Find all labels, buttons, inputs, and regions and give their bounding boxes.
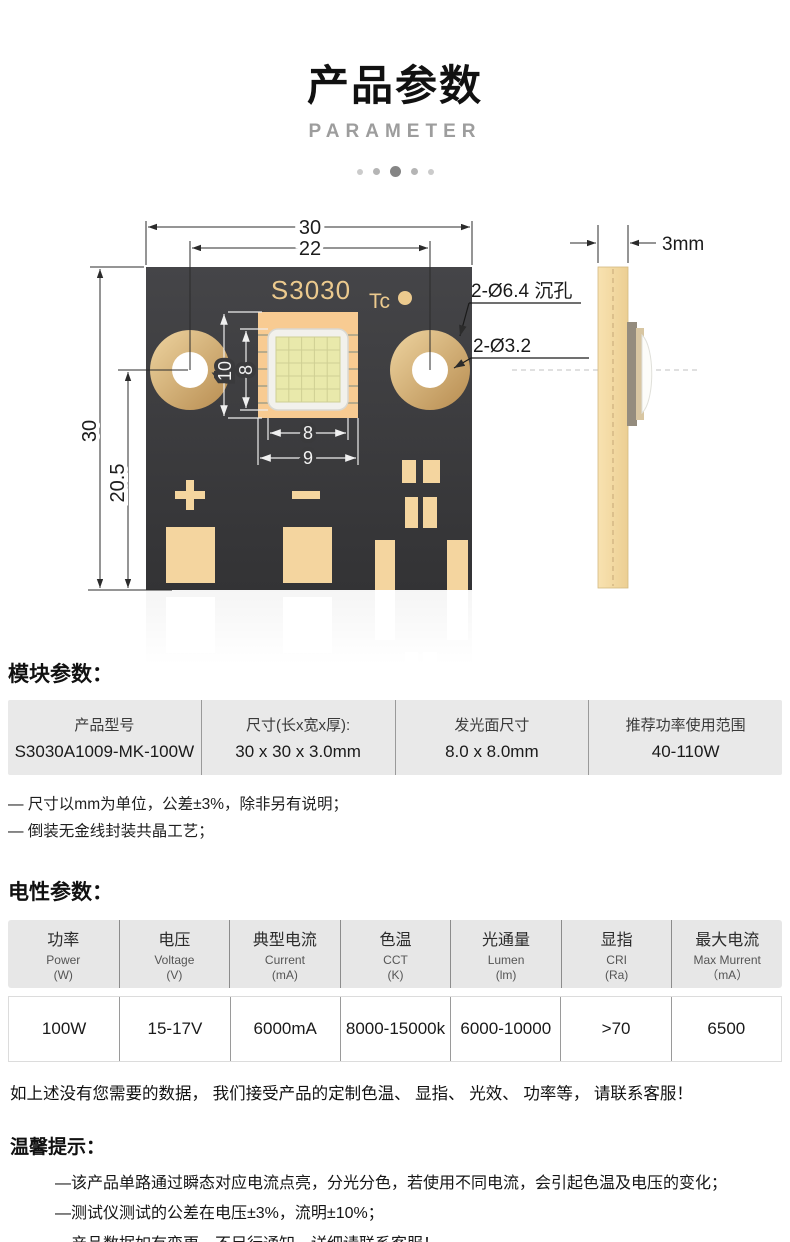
value-current: 6000mA xyxy=(230,997,340,1061)
col-en: Power xyxy=(46,953,80,968)
col-cn: 显指 xyxy=(601,926,633,950)
electrical-table-row: 100W 15-17V 6000mA 8000-15000k 6000-1000… xyxy=(8,996,782,1062)
product-parameter-page: 产品参数 PARAMETER xyxy=(0,0,790,1242)
table-cell-size: 尺寸(长x宽x厚): 30 x 30 x 3.0mm xyxy=(201,700,395,775)
dot-icon xyxy=(411,168,418,175)
col-en: Voltage xyxy=(154,953,194,968)
value-cri: >70 xyxy=(560,997,670,1061)
divider-dots xyxy=(0,163,790,175)
tips-heading: 温馨提示： xyxy=(10,1132,782,1159)
side-emitter-base xyxy=(627,322,637,426)
dim-thickness: 3mm xyxy=(662,234,704,255)
column-header-current: 典型电流 Current (mA) xyxy=(229,920,340,988)
cell-label: 发光面尺寸 xyxy=(454,714,529,735)
cell-value: 40-110W xyxy=(652,742,720,762)
dim-board-height: 30 xyxy=(79,420,101,442)
col-unit: (Ra) xyxy=(605,968,628,983)
col-cn: 电压 xyxy=(158,926,190,950)
cell-label: 推荐功率使用范围 xyxy=(626,714,746,735)
col-cn: 功率 xyxy=(47,926,79,950)
tc-point-dot xyxy=(398,291,412,305)
col-cn: 典型电流 xyxy=(253,926,317,950)
col-en: Current xyxy=(265,953,305,968)
customization-note: 如上述没有您需要的数据， 我们接受产品的定制色温、 显指、 光效、 功率等， 请… xyxy=(10,1080,782,1104)
electrical-table-header: 功率 Power (W) 电压 Voltage (V) 典型电流 Current… xyxy=(8,920,782,988)
dim-emitter-outer-v: 10 xyxy=(215,361,235,381)
module-note-line: — 倒装无金线封装共晶工艺； xyxy=(8,818,782,845)
col-unit: (W) xyxy=(54,968,73,983)
value-max-current: 6500 xyxy=(671,997,781,1061)
tc-point-label: Tc xyxy=(369,290,390,313)
through-hole-callout-label: 2-Ø3.2 xyxy=(473,336,531,357)
value-power: 100W xyxy=(9,997,119,1061)
led-module-diagram: S3030 Tc xyxy=(0,205,790,665)
col-unit: (K) xyxy=(387,968,403,983)
col-unit: (lm) xyxy=(496,968,517,983)
dim-emitter-inner-h: 8 xyxy=(303,423,313,443)
cell-label: 尺寸(长x宽x厚): xyxy=(246,714,350,735)
dim-board-width: 30 xyxy=(299,217,321,239)
col-cn: 色温 xyxy=(379,926,411,950)
col-unit: (mA) xyxy=(272,968,298,983)
plus-symbol xyxy=(186,480,194,510)
board-model-label: S3030 xyxy=(271,275,351,305)
col-unit: (V) xyxy=(166,968,182,983)
page-title: 产品参数 xyxy=(0,52,790,113)
column-header-lumen: 光通量 Lumen (lm) xyxy=(450,920,561,988)
value-lumen: 6000-10000 xyxy=(450,997,560,1061)
dim-hole-span: 22 xyxy=(299,238,321,260)
page-subtitle: PARAMETER xyxy=(0,121,790,143)
dim-emitter-inner-v: 8 xyxy=(236,365,256,375)
tip-line: —该产品单路通过瞬态对应电流点亮，分光分色，若使用不同电流，会引起色温及电压的变… xyxy=(55,1169,782,1199)
module-section-heading: 模块参数： xyxy=(8,658,782,688)
tip-line: —测试仪测试的公差在电压±3%，流明±10%； xyxy=(55,1199,782,1229)
cell-label: 产品型号 xyxy=(74,714,134,735)
column-header-cct: 色温 CCT (K) xyxy=(340,920,451,988)
electrical-parameters-section: 电性参数： 功率 Power (W) 电压 Voltage (V) 典型电流 C… xyxy=(8,876,782,1062)
value-voltage: 15-17V xyxy=(119,997,229,1061)
pcb-front-view: S3030 Tc xyxy=(146,267,472,590)
reflection-fade xyxy=(80,590,490,665)
title-block: 产品参数 PARAMETER xyxy=(0,52,790,175)
col-cn: 最大电流 xyxy=(695,926,759,950)
dot-icon xyxy=(428,169,434,175)
led-chip-grid xyxy=(276,337,340,402)
cell-value: 8.0 x 8.0mm xyxy=(445,742,539,762)
hole-callouts: 2-Ø6.4 沉孔 2-Ø3.2 xyxy=(454,280,589,368)
dot-icon xyxy=(357,169,363,175)
positive-pad xyxy=(166,527,215,583)
column-header-cri: 显指 CRI (Ra) xyxy=(561,920,672,988)
col-unit: （mA） xyxy=(706,968,748,983)
module-note-line: — 尺寸以mm为单位，公差±3%，除非另有说明； xyxy=(8,791,782,818)
column-header-max-current: 最大电流 Max Murrent （mA） xyxy=(671,920,782,988)
column-header-voltage: 电压 Voltage (V) xyxy=(119,920,230,988)
dot-icon xyxy=(373,168,380,175)
electrical-section-heading: 电性参数： xyxy=(8,876,782,906)
tip-line: —产品数据如有变更，不另行通知，详细请联系客服！ xyxy=(55,1230,782,1242)
module-notes: — 尺寸以mm为单位，公差±3%，除非另有说明； — 倒装无金线封装共晶工艺； xyxy=(8,791,782,845)
side-emitter-dome xyxy=(642,335,652,413)
table-cell-emitting-area: 发光面尺寸 8.0 x 8.0mm xyxy=(395,700,589,775)
minus-symbol xyxy=(292,491,320,499)
dot-icon xyxy=(390,166,401,177)
col-en: CRI xyxy=(606,953,627,968)
pcb-side-view: 3mm xyxy=(512,225,704,588)
thickness-dimension-lines xyxy=(570,225,656,263)
module-parameters-section: 模块参数： 产品型号 S3030A1009-MK-100W 尺寸(长x宽x厚):… xyxy=(8,658,782,845)
dim-hole-to-bottom: 20.5 xyxy=(107,464,129,503)
cell-value: S3030A1009-MK-100W xyxy=(15,742,195,762)
tips-list: —该产品单路通过瞬态对应电流点亮，分光分色，若使用不同电流，会引起色温及电压的变… xyxy=(55,1169,782,1242)
value-cct: 8000-15000k xyxy=(340,997,450,1061)
counterbore-callout-label: 2-Ø6.4 沉孔 xyxy=(471,280,572,302)
col-en: CCT xyxy=(383,953,408,968)
dim-emitter-outer-h: 9 xyxy=(303,448,313,468)
negative-pad xyxy=(283,527,332,583)
column-header-power: 功率 Power (W) xyxy=(8,920,119,988)
col-en: Max Murrent xyxy=(694,953,761,968)
table-cell-power-range: 推荐功率使用范围 40-110W xyxy=(588,700,782,775)
footer-notes: 如上述没有您需要的数据， 我们接受产品的定制色温、 显指、 光效、 功率等， 请… xyxy=(10,1080,782,1242)
module-parameters-table: 产品型号 S3030A1009-MK-100W 尺寸(长x宽x厚): 30 x … xyxy=(8,700,782,775)
table-cell-model: 产品型号 S3030A1009-MK-100W xyxy=(8,700,201,775)
col-cn: 光通量 xyxy=(482,926,530,950)
col-en: Lumen xyxy=(488,953,525,968)
cell-value: 30 x 30 x 3.0mm xyxy=(235,742,361,762)
